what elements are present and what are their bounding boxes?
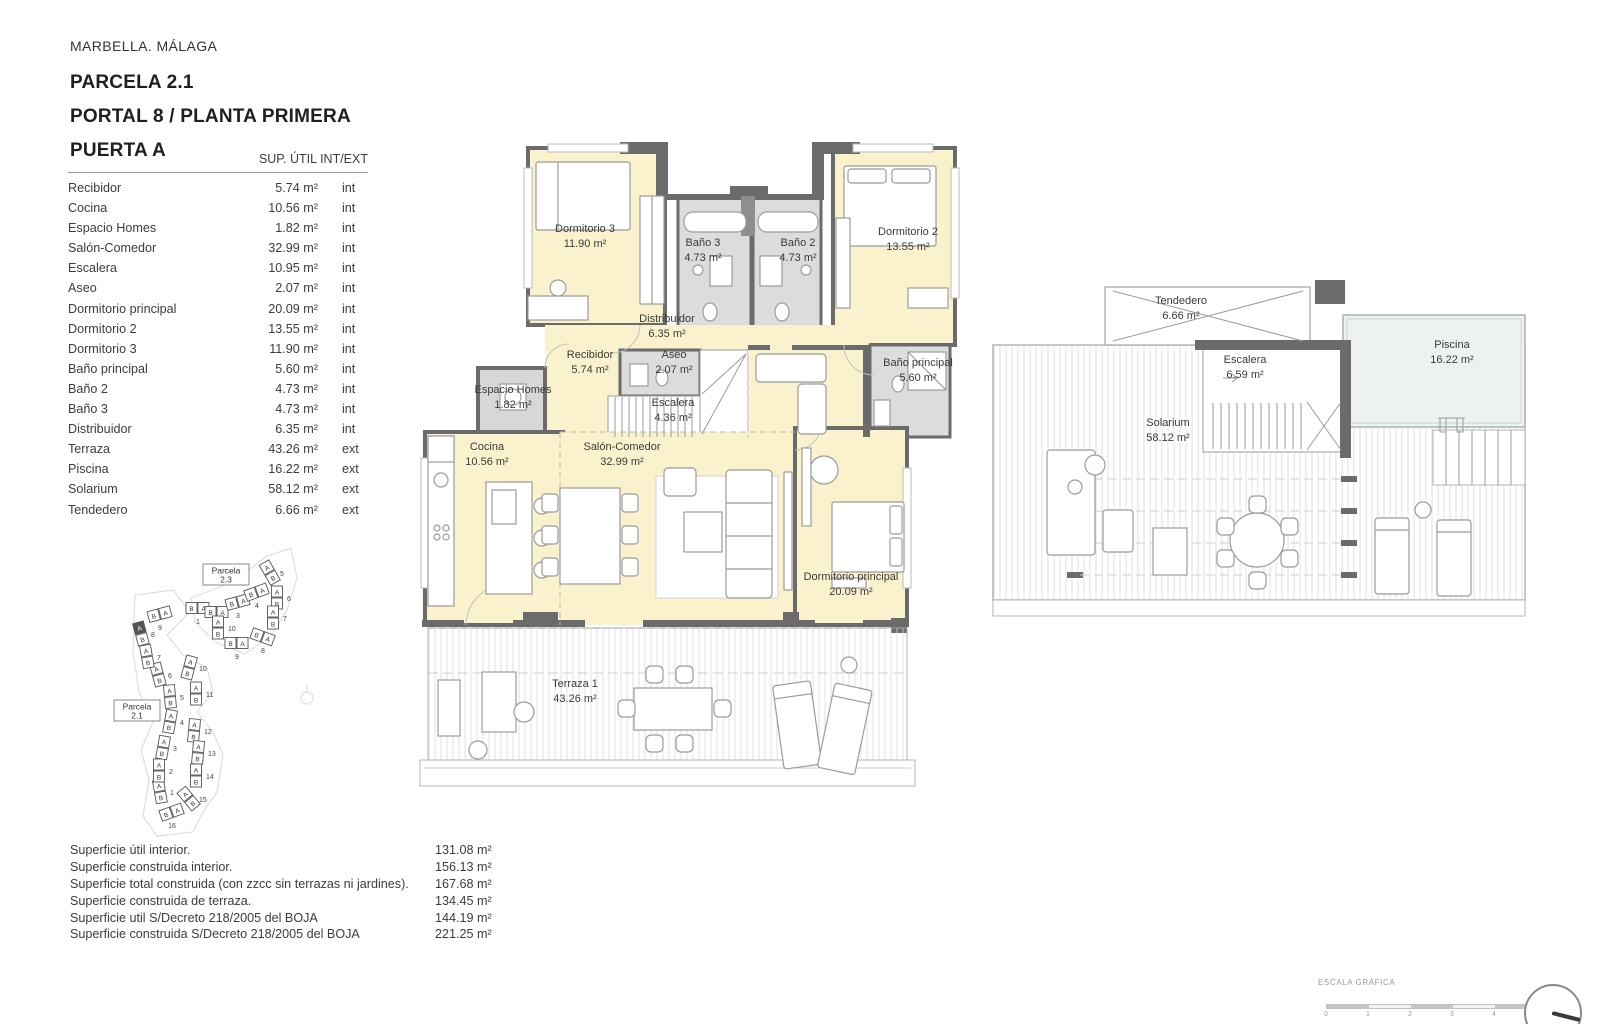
area-row-value: 5.74 m²: [238, 181, 318, 195]
portal-number: 4: [255, 603, 259, 610]
area-row: Terraza43.26 m²ext: [68, 442, 368, 462]
site-portal-marker: AB3: [156, 735, 180, 761]
unit-letter: B: [194, 779, 198, 786]
summary-label: Superficie construida S/Decreto 218/2005…: [70, 927, 435, 944]
unit-letter: A: [157, 762, 162, 769]
area-row: Tendedero6.66 m²ext: [68, 503, 368, 523]
site-portal-marker: AB5: [163, 684, 185, 709]
room-label-terraza: Terraza 143.26 m²: [552, 677, 598, 707]
area-row-label: Solarium: [68, 482, 238, 496]
portal-number: 5: [280, 571, 284, 578]
summary-value: 131.08 m²: [435, 843, 492, 860]
scale-tick: 0: [1324, 1011, 1328, 1018]
unit-letter: B: [208, 610, 212, 617]
scale-segment: [1453, 1005, 1495, 1008]
site-portal-marker: AB14: [191, 764, 214, 787]
room-name: Baño 3: [684, 236, 721, 251]
area-row: Piscina16.22 m²ext: [68, 462, 368, 482]
site-plan: AB1AB2AB3AB4AB5AB6AB7AB8BA9AB10AB11AB12A…: [95, 540, 425, 840]
area-row-label: Baño 2: [68, 382, 238, 396]
area-row-type: int: [342, 422, 368, 436]
site-portal-marker: AB4: [163, 709, 187, 735]
site-portal-marker: AB13: [192, 741, 218, 766]
room-area: 4.36 m²: [652, 411, 695, 426]
room-area: 4.73 m²: [779, 251, 816, 266]
area-row-type: int: [342, 241, 368, 255]
room-area: 1.82 m²: [474, 398, 551, 413]
portal-number: 8: [151, 632, 155, 639]
site-portal-marker: AB12: [188, 719, 214, 744]
room-label-dormitorio2: Dormitorio 213.55 m²: [878, 225, 938, 255]
portal-number: 1: [196, 619, 200, 626]
area-row-value: 10.56 m²: [238, 201, 318, 215]
scale-bar: ESCALA GRÁFICA 012345m: [1318, 978, 1558, 1024]
room-name: Baño 2: [779, 236, 816, 251]
room-label-escalera: Escalera4.36 m²: [652, 396, 695, 426]
area-row-type: int: [342, 402, 368, 416]
area-row-value: 20.09 m²: [238, 302, 318, 316]
room-area: 2.07 m²: [655, 363, 692, 378]
summary-row: Superficie total construida (con zzcc si…: [70, 877, 540, 894]
portal-number: 6: [168, 673, 172, 680]
area-row-type: int: [342, 382, 368, 396]
room-name: Baño principal: [883, 356, 953, 371]
area-row-value: 32.99 m²: [238, 241, 318, 255]
area-row-value: 6.66 m²: [238, 503, 318, 517]
portal-number: 9: [235, 654, 239, 661]
summary-value: 156.13 m²: [435, 860, 492, 877]
area-row-type: ext: [342, 462, 368, 476]
area-row-label: Baño 3: [68, 402, 238, 416]
site-portal-marker: AB10: [181, 655, 210, 683]
room-name: Cocina: [465, 440, 508, 455]
site-portal-marker: BA8: [246, 628, 276, 658]
unit-letter: B: [195, 756, 200, 763]
portal-number: 15: [199, 797, 207, 804]
portal-number: 8: [261, 648, 265, 655]
compass-needle: [1552, 1011, 1581, 1022]
area-row-label: Recibidor: [68, 181, 238, 195]
room-label-espacio-homes: Espacio Homes1.82 m²: [474, 383, 551, 413]
area-row-type: int: [342, 302, 368, 316]
site-portal-marker: AB2: [154, 759, 174, 782]
portal-number: 14: [206, 774, 214, 781]
portal-number: 12: [204, 729, 212, 736]
summary-label: Superficie construida interior.: [70, 860, 435, 877]
summary-row: Superficie construida de terraza.134.45 …: [70, 894, 540, 911]
sheet-location: MARBELLA. MÁLAGA: [70, 38, 217, 54]
room-label-recibidor: Recibidor5.74 m²: [567, 348, 613, 378]
summary-row: Superficie construida S/Decreto 218/2005…: [70, 927, 540, 944]
surface-summary: Superficie útil interior.131.08 m²Superf…: [70, 843, 540, 944]
room-name: Piscina: [1430, 338, 1473, 353]
unit-letter: B: [228, 641, 232, 648]
area-row-value: 43.26 m²: [238, 442, 318, 456]
area-table-header: SUP. ÚTIL INT/EXT: [68, 152, 368, 173]
room-label-piscina: Piscina16.22 m²: [1430, 338, 1473, 368]
scale-segment: [1411, 1005, 1453, 1008]
area-table: SUP. ÚTIL INT/EXT Recibidor5.74 m²intCoc…: [68, 152, 368, 523]
area-row-value: 58.12 m²: [238, 482, 318, 496]
portal-number: 7: [283, 616, 287, 623]
sheet-parcela: PARCELA 2.1: [70, 66, 194, 99]
scale-tick: 1: [1366, 1011, 1370, 1018]
scale-bar-segments: [1326, 1004, 1538, 1009]
room-area: 10.56 m²: [465, 455, 508, 470]
summary-value: 144.19 m²: [435, 911, 492, 928]
summary-row: Superficie útil interior.131.08 m²: [70, 843, 540, 860]
area-row: Recibidor5.74 m²int: [68, 181, 368, 201]
area-row-value: 16.22 m²: [238, 462, 318, 476]
unit-letter: A: [240, 641, 245, 648]
area-row: Aseo2.07 m²int: [68, 281, 368, 301]
area-row-type: int: [342, 221, 368, 235]
room-name: Solarium: [1146, 416, 1189, 431]
site-portal-marker: AB5: [259, 556, 287, 586]
summary-label: Superficie construida de terraza.: [70, 894, 435, 911]
scale-segment: [1327, 1005, 1369, 1008]
area-row-type: ext: [342, 482, 368, 496]
room-area: 11.90 m²: [555, 237, 615, 252]
summary-label: Superficie útil interior.: [70, 843, 435, 860]
site-portal-marker: BA9: [225, 638, 248, 662]
portal-number: 3: [173, 746, 177, 753]
portal-number: 3: [236, 613, 240, 620]
area-row: Dormitorio 213.55 m²int: [68, 322, 368, 342]
area-row-label: Salón-Comedor: [68, 241, 238, 255]
area-row-label: Baño principal: [68, 362, 238, 376]
floor-plan-sheet: MARBELLA. MÁLAGA PARCELA 2.1 PORTAL 8 / …: [0, 0, 1600, 1024]
area-row-label: Escalera: [68, 261, 238, 275]
unit-letter: A: [194, 767, 199, 774]
room-name: Salón-Comedor: [583, 440, 660, 455]
area-row-type: ext: [342, 503, 368, 517]
area-row-value: 6.35 m²: [238, 422, 318, 436]
unit-letter: B: [157, 774, 161, 781]
room-area: 4.73 m²: [684, 251, 721, 266]
scale-bar-label: ESCALA GRÁFICA: [1318, 978, 1558, 987]
portal-number: 4: [180, 720, 184, 727]
room-area: 58.12 m²: [1146, 431, 1189, 446]
roof-plan: [985, 280, 1550, 630]
area-row: Dormitorio principal20.09 m²int: [68, 302, 368, 322]
unit-letter: B: [189, 606, 193, 613]
unit-letter: A: [216, 619, 221, 626]
portal-number: 5: [180, 695, 184, 702]
room-area: 13.55 m²: [878, 240, 938, 255]
room-label-salon: Salón-Comedor32.99 m²: [583, 440, 660, 470]
unit-letter: A: [271, 609, 276, 616]
room-area: 6.66 m²: [1155, 309, 1207, 324]
room-label-bano-principal: Baño principal5.60 m²: [883, 356, 953, 386]
room-area: 6.59 m²: [1224, 368, 1267, 383]
area-table-rows: Recibidor5.74 m²intCocina10.56 m²intEspa…: [68, 173, 368, 523]
room-label-escalera-roof: Escalera6.59 m²: [1224, 353, 1267, 383]
area-row-type: int: [342, 201, 368, 215]
scale-tick: 3: [1450, 1011, 1454, 1018]
room-area: 6.35 m²: [639, 327, 695, 342]
area-row: Baño principal5.60 m²int: [68, 362, 368, 382]
room-name: Recibidor: [567, 348, 613, 363]
area-row-value: 4.73 m²: [238, 402, 318, 416]
area-row-value: 5.60 m²: [238, 362, 318, 376]
room-name: Escalera: [652, 396, 695, 411]
area-row-label: Dormitorio 2: [68, 322, 238, 336]
area-row-type: int: [342, 342, 368, 356]
area-row-label: Piscina: [68, 462, 238, 476]
area-row: Salón-Comedor32.99 m²int: [68, 241, 368, 261]
area-row: Distribuidor6.35 m²int: [68, 422, 368, 442]
area-row-type: ext: [342, 442, 368, 456]
room-area: 5.74 m²: [567, 363, 613, 378]
room-name: Dormitorio principal: [804, 570, 899, 585]
parcela-21-num: 2.1: [131, 711, 143, 721]
area-row-value: 2.07 m²: [238, 281, 318, 295]
area-row-value: 13.55 m²: [238, 322, 318, 336]
site-markers: AB1AB2AB3AB4AB5AB6AB7AB8BA9AB10AB11AB12A…: [133, 556, 291, 833]
room-label-bano2: Baño 24.73 m²: [779, 236, 816, 266]
area-row-type: int: [342, 281, 368, 295]
scale-tick: 2: [1408, 1011, 1412, 1018]
area-row-label: Aseo: [68, 281, 238, 295]
area-row-value: 11.90 m²: [238, 342, 318, 356]
site-portal-marker: AB7: [268, 606, 288, 629]
portal-number: 9: [158, 625, 162, 632]
site-portal-marker: AB8: [133, 619, 158, 646]
portal-number: 2: [169, 769, 173, 776]
portal-number: 11: [206, 692, 213, 699]
room-label-dormitorio3: Dormitorio 311.90 m²: [555, 222, 615, 252]
area-row-label: Dormitorio principal: [68, 302, 238, 316]
room-label-aseo: Aseo2.07 m²: [655, 348, 692, 378]
portal-number: 13: [208, 751, 216, 758]
room-name: Terraza 1: [552, 677, 598, 692]
unit-letter: B: [216, 631, 220, 638]
room-name: Distribuidor: [639, 312, 695, 327]
parcela-23-num: 2.3: [220, 575, 232, 585]
room-label-dormitorio-principal: Dormitorio principal20.09 m²: [804, 570, 899, 600]
area-row-label: Tendedero: [68, 503, 238, 517]
area-row-label: Terraza: [68, 442, 238, 456]
portal-number: 10: [199, 666, 207, 673]
portal-number: 10: [228, 626, 236, 633]
portal-number: 16: [168, 823, 176, 830]
area-row-label: Dormitorio 3: [68, 342, 238, 356]
room-name: Escalera: [1224, 353, 1267, 368]
area-row-type: int: [342, 322, 368, 336]
unit-letter: B: [194, 697, 198, 704]
unit-letter: B: [271, 621, 275, 628]
area-row: Baño 34.73 m²int: [68, 402, 368, 422]
area-row-value: 10.95 m²: [238, 261, 318, 275]
site-portal-marker: AB11: [191, 682, 214, 705]
unit-letter: A: [275, 589, 280, 596]
area-row-type: int: [342, 362, 368, 376]
summary-value: 221.25 m²: [435, 927, 492, 944]
summary-value: 134.45 m²: [435, 894, 492, 911]
area-row-type: int: [342, 181, 368, 195]
room-label-solarium: Solarium58.12 m²: [1146, 416, 1189, 446]
area-row-label: Cocina: [68, 201, 238, 215]
room-label-bano3: Baño 34.73 m²: [684, 236, 721, 266]
area-row: Espacio Homes1.82 m²int: [68, 221, 368, 241]
area-row: Escalera10.95 m²int: [68, 261, 368, 281]
site-portal-marker: BA9: [147, 606, 175, 635]
room-name: Dormitorio 2: [878, 225, 938, 240]
room-area: 43.26 m²: [552, 692, 598, 707]
room-name: Espacio Homes: [474, 383, 551, 398]
room-area: 20.09 m²: [804, 585, 899, 600]
area-row: Dormitorio 311.90 m²int: [68, 342, 368, 362]
summary-value: 167.68 m²: [435, 877, 492, 894]
scale-segment: [1369, 1005, 1411, 1008]
summary-label: Superficie util S/Decreto 218/2005 del B…: [70, 911, 435, 928]
room-label-distribuidor: Distribuidor6.35 m²: [639, 312, 695, 342]
unit-letter: A: [194, 685, 199, 692]
portal-number: 1: [170, 790, 174, 797]
room-label-tendedero: Tendedero6.66 m²: [1155, 294, 1207, 324]
site-portal-marker: BA16: [159, 803, 189, 833]
portal-number: 7: [157, 655, 161, 662]
sheet-portal: PORTAL 8 / PLANTA PRIMERA: [70, 100, 351, 133]
room-name: Dormitorio 3: [555, 222, 615, 237]
room-area: 32.99 m²: [583, 455, 660, 470]
area-row-value: 4.73 m²: [238, 382, 318, 396]
room-name: Aseo: [655, 348, 692, 363]
summary-row: Superficie util S/Decreto 218/2005 del B…: [70, 911, 540, 928]
area-row: Cocina10.56 m²int: [68, 201, 368, 221]
area-row: Baño 24.73 m²int: [68, 382, 368, 402]
area-row-value: 1.82 m²: [238, 221, 318, 235]
area-row-label: Distribuidor: [68, 422, 238, 436]
room-area: 5.60 m²: [883, 371, 953, 386]
room-name: Tendedero: [1155, 294, 1207, 309]
summary-row: Superficie construida interior.156.13 m²: [70, 860, 540, 877]
scale-tick: 4: [1492, 1011, 1496, 1018]
summary-label: Superficie total construida (con zzcc si…: [70, 877, 435, 894]
area-row-type: int: [342, 261, 368, 275]
unit-letter: B: [168, 700, 173, 707]
area-row: Solarium58.12 m²ext: [68, 482, 368, 502]
room-area: 16.22 m²: [1430, 353, 1473, 368]
room-label-cocina: Cocina10.56 m²: [465, 440, 508, 470]
portal-number: 6: [287, 596, 291, 603]
area-row-label: Espacio Homes: [68, 221, 238, 235]
